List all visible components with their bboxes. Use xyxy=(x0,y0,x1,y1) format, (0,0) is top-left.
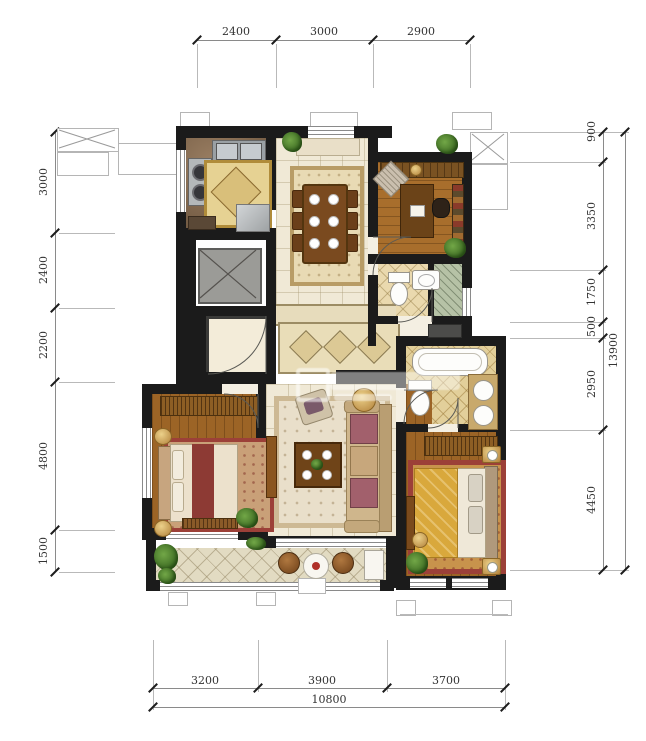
bedroom2-door-arc xyxy=(224,394,258,428)
floor-plan-canvas: 2400 3000 2900 3000 2400 2200 4800 1500 … xyxy=(0,0,646,741)
master-bath-door-arc xyxy=(428,398,458,428)
ac-platform-x xyxy=(472,134,504,160)
study-door-arc xyxy=(373,237,411,275)
neighbor-x xyxy=(59,130,115,148)
bathroom-door-arc xyxy=(398,288,432,322)
watermark xyxy=(334,394,392,401)
elevator-x xyxy=(200,250,256,298)
entry-door-arc xyxy=(208,316,266,374)
master-bedroom-door-arc xyxy=(404,390,438,424)
watermark-logo xyxy=(296,368,330,402)
watermark xyxy=(330,372,460,390)
